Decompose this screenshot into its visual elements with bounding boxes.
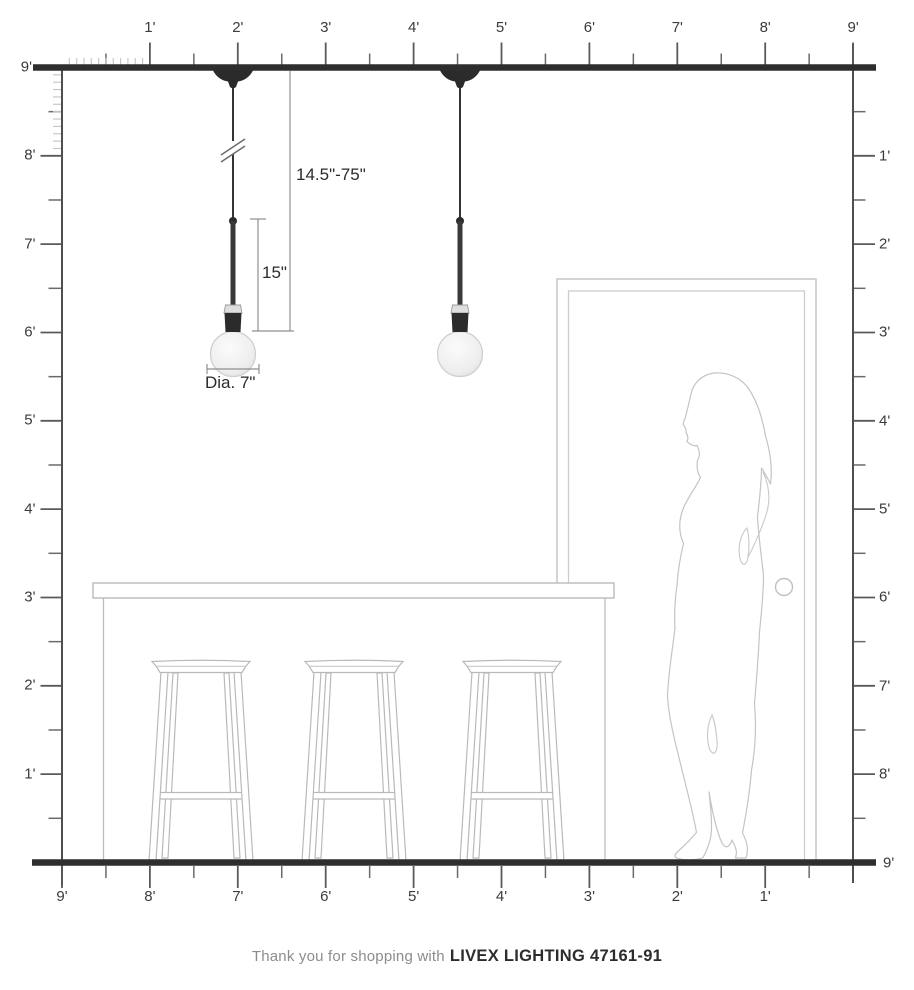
ruler-top-label-3ft: 3' xyxy=(320,20,331,35)
stool-footrest xyxy=(468,793,556,800)
pendant-light-1 xyxy=(211,71,256,377)
ruler-top-label-5ft: 5' xyxy=(496,20,507,35)
pendant-chrome-band xyxy=(451,305,469,313)
stool-footrest xyxy=(157,793,245,800)
ruler-top-label-1ft: 1' xyxy=(144,20,155,35)
pendant-canopy xyxy=(213,71,253,89)
ruler-right-label-4ft: 4' xyxy=(879,413,890,428)
ruler-left-label-8ft: 8' xyxy=(24,148,35,163)
door-knob xyxy=(776,579,793,596)
hang-range-label: 14.5"-75" xyxy=(296,166,366,183)
ruler-left-label-9ft: 9' xyxy=(21,60,32,75)
ruler-right-label-6ft: 6' xyxy=(879,590,890,605)
pendant-canopy xyxy=(440,71,480,89)
footer-prefix: Thank you for shopping with xyxy=(252,948,445,965)
ruler-left-label-4ft: 4' xyxy=(24,501,35,516)
ruler-top-label-7ft: 7' xyxy=(672,20,683,35)
pendant-socket xyxy=(225,313,242,332)
ruler-top-label-4ft: 4' xyxy=(408,20,419,35)
ruler-right-label-1ft: 1' xyxy=(879,148,890,163)
pendant-socket xyxy=(452,313,469,332)
ruler-left-label-5ft: 5' xyxy=(24,413,35,428)
ruler-bottom-label-4ft: 4' xyxy=(496,889,507,904)
ruler-bottom-label-5ft: 5' xyxy=(408,889,419,904)
stool-footrest xyxy=(310,793,398,800)
ruler-right-label-7ft: 7' xyxy=(879,678,890,693)
fixture-diameter-label: Dia. 7" xyxy=(205,374,255,391)
pendant-chrome-band xyxy=(224,305,242,313)
ruler-right-label-2ft: 2' xyxy=(879,237,890,252)
fixture-height-label: 15" xyxy=(262,264,287,281)
light-bulb xyxy=(211,332,256,377)
left-ruler-ticks xyxy=(41,75,62,818)
ruler-bottom-label-8ft: 8' xyxy=(144,889,155,904)
ruler-right-label-8ft: 8' xyxy=(879,767,890,782)
dimension-diagram-page: 1'2'3'4'5'6'7'8'9'9'8'7'6'5'4'3'2'1'1'2'… xyxy=(0,0,914,990)
ruler-top-label-6ft: 6' xyxy=(584,20,595,35)
ruler-left-label-2ft: 2' xyxy=(24,678,35,693)
ruler-right-label-5ft: 5' xyxy=(879,502,890,517)
island-countertop xyxy=(93,583,614,598)
ruler-right-label-3ft: 3' xyxy=(879,325,890,340)
ruler-top-label-8ft: 8' xyxy=(760,20,771,35)
footer-brand-model: LIVEX LIGHTING 47161-91 xyxy=(450,947,662,965)
dimension-lines xyxy=(207,71,294,374)
island-body xyxy=(104,598,606,863)
ruler-left-label-7ft: 7' xyxy=(24,236,35,251)
right-ruler-ticks xyxy=(854,112,875,819)
ruler-bottom-label-3ft: 3' xyxy=(584,889,595,904)
dimension-diagram xyxy=(0,0,914,990)
pendant-light-2 xyxy=(438,71,483,377)
bottom-ruler-ticks xyxy=(62,866,809,888)
ruler-top-label-2ft: 2' xyxy=(232,20,243,35)
ruler-top-label-9ft: 9' xyxy=(847,20,858,35)
ruler-bottom-label-7ft: 7' xyxy=(232,889,243,904)
ruler-left-label-6ft: 6' xyxy=(24,324,35,339)
ruler-right-label-9ft: 9' xyxy=(883,855,894,870)
ruler-bottom-label-1ft: 1' xyxy=(760,889,771,904)
ruler-bottom-label-2ft: 2' xyxy=(672,889,683,904)
ruler-left-label-3ft: 3' xyxy=(24,589,35,604)
ruler-left-label-1ft: 1' xyxy=(24,766,35,781)
ruler-bottom-label-6ft: 6' xyxy=(320,889,331,904)
ruler-bottom-label-9ft: 9' xyxy=(56,889,67,904)
top-ruler-ticks xyxy=(69,43,853,65)
light-bulb xyxy=(438,332,483,377)
footer-message: Thank you for shopping withLIVEX LIGHTIN… xyxy=(0,947,914,966)
